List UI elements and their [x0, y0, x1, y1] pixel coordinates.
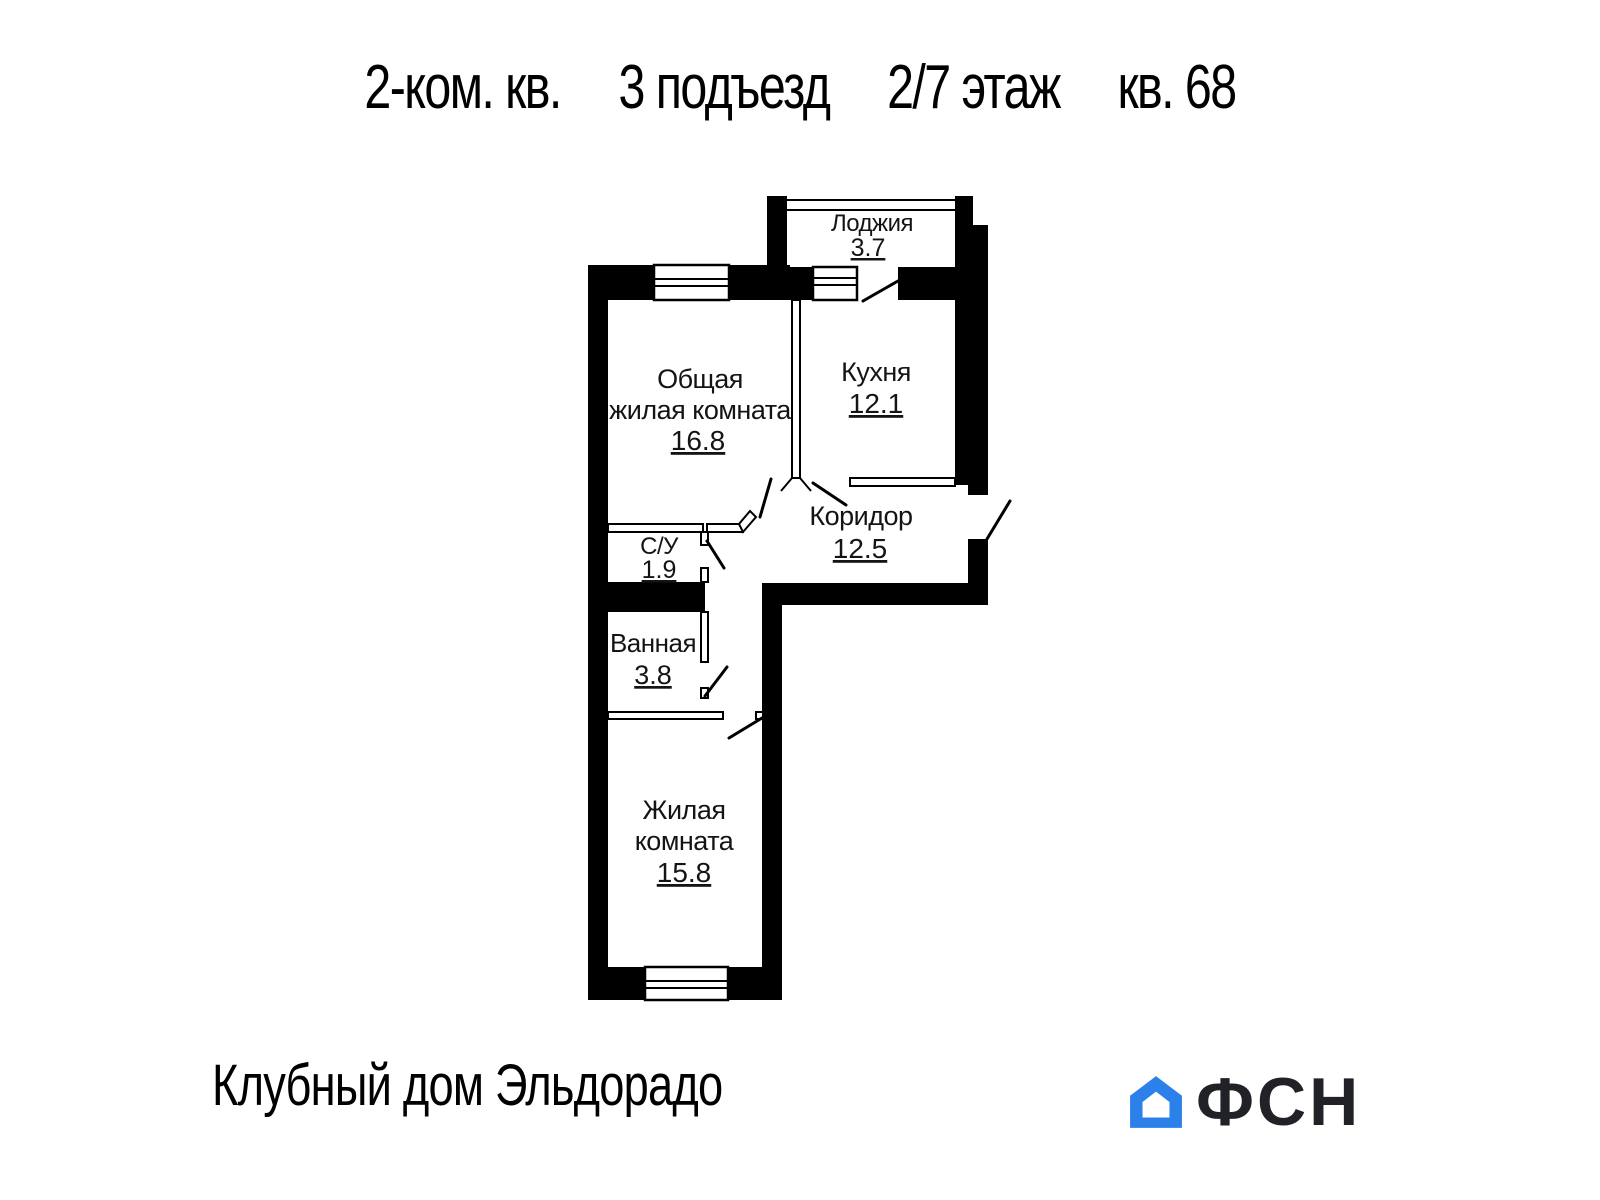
door-living-main: [760, 479, 771, 517]
project-name: Клубный дом Эльдорадо: [212, 1052, 722, 1119]
label-living-second-line2: комната: [635, 826, 735, 856]
partition-bathroom-right: [701, 612, 708, 662]
area-living-second: 15.8: [657, 857, 712, 888]
partition-wc-top: [608, 524, 703, 532]
house-icon: [1128, 1074, 1184, 1130]
wall-corridor-bottom: [762, 583, 988, 605]
label-kitchen: Кухня: [841, 357, 911, 387]
wall-right-lower: [762, 583, 782, 1000]
partition-living-corridor-angled-end: [739, 511, 756, 532]
walls-thick: [588, 196, 988, 1000]
wall-right-outer-inner: [968, 225, 988, 495]
door-loggia: [863, 281, 898, 301]
wall-top-left-segment: [588, 265, 654, 300]
window-loggia: [813, 267, 857, 300]
room-labels: Лоджия 3.7 Общая жилая комната 16.8 Кухн…: [609, 210, 913, 888]
partition-kitchen-corridor: [850, 478, 955, 486]
wall-wc-bottom: [588, 582, 705, 612]
wall-loggia-left-column: [767, 196, 787, 300]
area-corridor: 12.5: [833, 533, 888, 564]
wall-loggia-right-column: [955, 196, 973, 226]
area-wc: 1.9: [642, 556, 677, 584]
label-living-second-line1: Жилая: [643, 795, 726, 825]
floor-plan-drawing: Лоджия 3.7 Общая жилая комната 16.8 Кухн…: [0, 0, 1600, 1200]
jamb-wc-wall: [701, 568, 708, 582]
partition-living-kitchen: [792, 300, 800, 478]
wall-bottom-right-segment: [728, 967, 782, 1000]
area-loggia: 3.7: [851, 234, 886, 262]
area-living-main: 16.8: [671, 425, 726, 456]
door-bathroom: [705, 667, 727, 696]
wall-loggia-sill-right: [898, 267, 955, 300]
floor-plan-page: 2-ком. кв. 3 подъезд 2/7 этаж кв. 68: [0, 0, 1600, 1200]
partition-end-tick-right: [800, 478, 811, 491]
area-kitchen: 12.1: [849, 388, 904, 419]
area-bathroom: 3.8: [634, 660, 672, 690]
label-corridor: Коридор: [809, 501, 912, 531]
label-loggia: Лоджия: [831, 210, 913, 237]
wall-loggia-sill-left: [787, 267, 813, 300]
wall-left-outer: [588, 265, 608, 1000]
window-living-main: [654, 265, 729, 300]
label-living-main-line1: Общая: [657, 364, 743, 394]
window-living-second: [645, 967, 728, 1000]
door-wc: [707, 541, 724, 568]
label-bathroom: Ванная: [610, 628, 696, 658]
partition-bathroom-bottom: [608, 712, 723, 719]
developer-logo: ФСН: [1128, 1068, 1361, 1136]
door-entrance: [987, 501, 1010, 539]
partition-end-tick-left: [781, 478, 792, 491]
logo-text: ФСН: [1196, 1068, 1361, 1136]
wall-bottom-left-segment: [588, 967, 645, 1000]
label-living-main-line2: жилая комната: [609, 395, 792, 425]
door-living-second: [729, 718, 762, 738]
loggia-glazing: [770, 200, 957, 210]
partition-living-corridor: [707, 524, 743, 532]
wall-right-outer-upper: [955, 225, 968, 485]
